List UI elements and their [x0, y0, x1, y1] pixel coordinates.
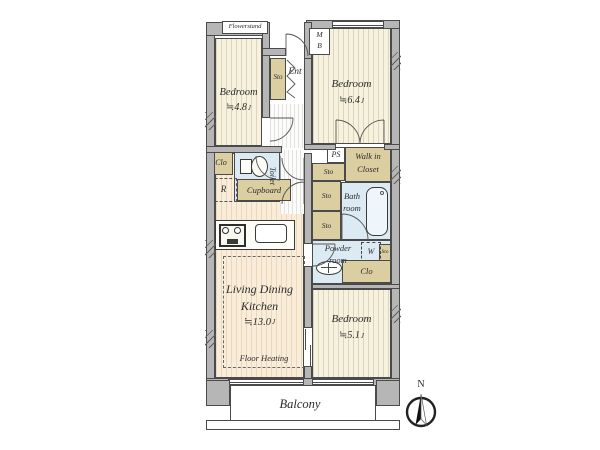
hallway-upper — [270, 104, 304, 148]
storage-3-label: Sto — [312, 211, 341, 240]
pipe-space-label: PS — [327, 147, 345, 163]
ldk-name-line1: Living Dining — [215, 281, 304, 297]
balcony-pillar-right — [376, 380, 400, 406]
bedroom-b-name: Bedroom — [312, 78, 391, 92]
wall-h-powder-bedroom — [312, 284, 400, 289]
entrance-label: Ent — [285, 66, 305, 80]
ldk-name-line2: Kitchen — [215, 298, 304, 314]
wall-center-low — [304, 266, 312, 328]
storage-1-label: Sto — [312, 163, 345, 181]
refrigerator-label: R — [210, 178, 237, 202]
bedroom-c-size: ≒5.1J — [312, 330, 391, 343]
meter-box-label-b: B — [309, 41, 330, 51]
wall-hatch-2 — [205, 240, 216, 258]
bedroom-a-name: Bedroom — [213, 86, 264, 100]
compass-north-label: N — [404, 379, 438, 391]
wall-hatch-3 — [205, 330, 216, 348]
compass-icon — [404, 392, 438, 430]
sliding-door-leaf-2 — [310, 345, 311, 366]
flowerstand-label: Flowerstand — [222, 21, 268, 34]
bathtub-drain — [380, 191, 384, 195]
powder-sink-cross-h — [321, 267, 337, 268]
bathroom-line1: Bath — [336, 190, 368, 202]
ldk-size: ≒13.0J — [215, 316, 304, 330]
floorplan-canvas: Flowerstand M B Sto Ent Bedroom ≒4.8J Be… — [0, 0, 600, 450]
wall-hatch-4 — [390, 52, 401, 70]
walk-in-closet-line2: Closet — [345, 163, 391, 175]
closet-b-label: Clo — [342, 260, 391, 283]
stove-burner-right — [234, 227, 241, 234]
balcony-side-left — [230, 386, 231, 420]
bedroom-b-size: ≒6.4J — [312, 95, 391, 108]
bathtub — [366, 187, 388, 236]
powder-line1: Powder — [316, 242, 360, 254]
wall-center-mid — [304, 153, 312, 244]
closet-a-label: Clo — [209, 151, 233, 175]
cupboard-label: Cupboard — [237, 179, 291, 201]
stove-burner-left — [222, 227, 229, 234]
walk-in-closet-line1: Walk in — [345, 150, 391, 162]
storage-4-label: Sto — [379, 244, 391, 261]
balcony-side-right — [375, 386, 376, 420]
balcony-pillar-left — [206, 380, 230, 406]
kitchen-sink — [255, 224, 287, 243]
entrance-storage-label: Sto — [270, 72, 286, 84]
bedroom-c-name: Bedroom — [312, 313, 391, 327]
balcony-label: Balcony — [240, 397, 360, 413]
wall-right — [391, 20, 400, 386]
bedroom-a-size: ≒4.8J — [213, 102, 264, 115]
balcony-railing — [206, 420, 400, 430]
window-bedroom-b-top — [332, 21, 384, 28]
window-bedroom-c-balcony — [312, 379, 374, 385]
sliding-door-leaf-1 — [305, 329, 306, 350]
wall-porch-step — [262, 48, 286, 56]
window-ldk-balcony — [228, 379, 304, 385]
stove-grill — [227, 239, 238, 244]
floor-heating-label: Floor Heating — [223, 352, 305, 364]
wall-hatch-5 — [390, 166, 401, 184]
wall-hatch-6 — [390, 305, 401, 323]
meter-box-label-m: M — [309, 30, 330, 40]
wall-center-upper — [304, 58, 312, 146]
